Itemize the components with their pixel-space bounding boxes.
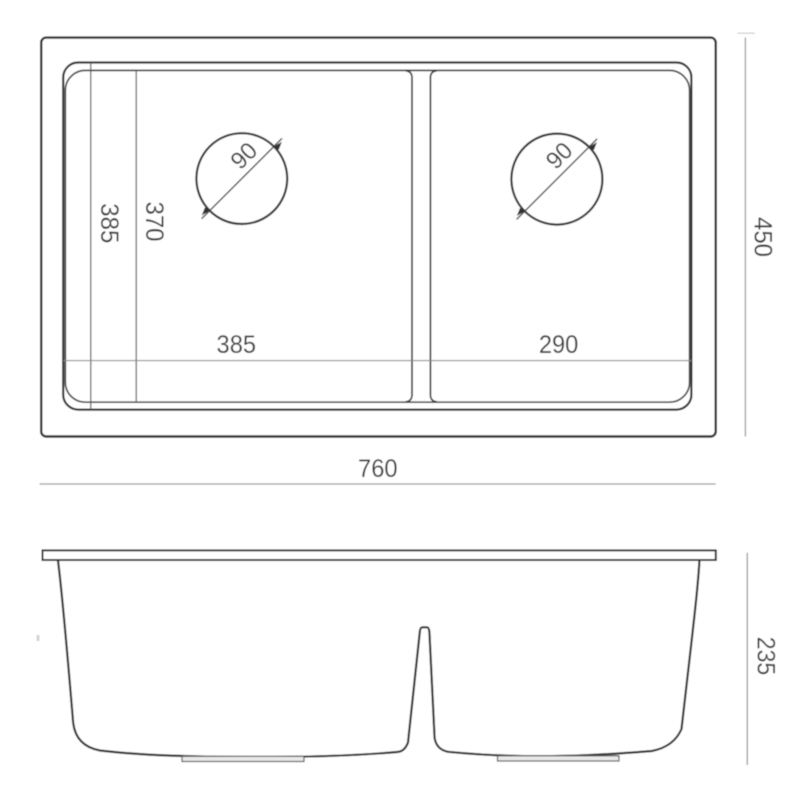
svg-text:235: 235 [752, 637, 780, 676]
svg-text:450: 450 [749, 217, 777, 257]
svg-text:385: 385 [217, 331, 257, 359]
svg-text:370: 370 [140, 202, 168, 242]
svg-text:290: 290 [539, 331, 579, 359]
svg-text:760: 760 [358, 455, 398, 483]
svg-text:385: 385 [95, 203, 123, 243]
